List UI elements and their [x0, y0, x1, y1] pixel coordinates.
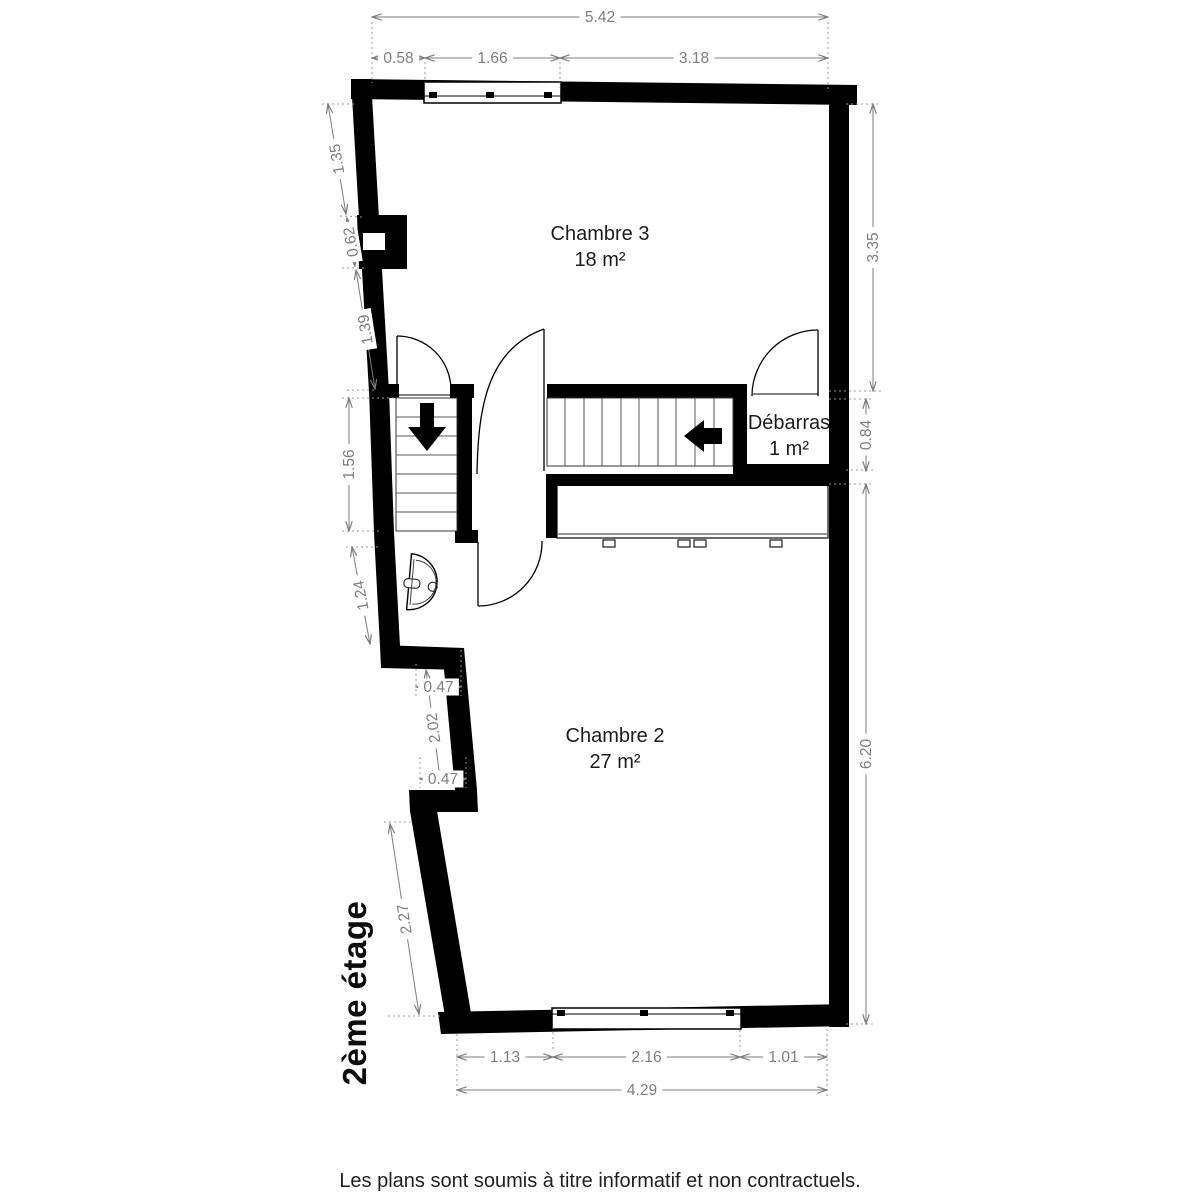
room-label: Débarras1 m²	[748, 412, 830, 460]
balustrade-clip	[678, 540, 690, 547]
stairs-left	[396, 398, 457, 531]
dimension-label: 1.24	[350, 579, 372, 612]
floorplan-canvas: 5.420.581.663.181.132.161.014.291.350.62…	[0, 0, 1200, 1200]
dimension: 3.18	[560, 50, 828, 68]
dimension-label: 4.29	[627, 1082, 657, 1099]
dimension: 0.47	[416, 679, 461, 697]
wall-below-stairs-end	[546, 474, 557, 538]
dimension: 3.35	[865, 104, 883, 391]
wall-debarras-left	[733, 398, 747, 468]
room-area: 1 m²	[769, 438, 809, 460]
dimension-label: 1.01	[768, 1049, 798, 1066]
wall-right	[829, 85, 849, 1027]
dimensions: 5.420.581.663.181.132.161.014.291.350.62…	[325, 9, 882, 1100]
dimension-label: 1.56	[341, 449, 358, 479]
dimension-label: 0.47	[423, 679, 453, 696]
dimension-label: 0.84	[858, 420, 875, 451]
dimension: 1.66	[425, 50, 560, 68]
dimension: 1.13	[457, 1049, 553, 1067]
room-area: 27 m²	[589, 751, 640, 773]
dimension-label: 5.42	[585, 9, 615, 26]
wall-left-mid	[369, 390, 394, 533]
dimension: 0.58	[372, 50, 425, 68]
dimension: 6.20	[858, 484, 876, 1024]
door-chambre3-left	[397, 336, 452, 395]
dimension: 1.24	[349, 547, 374, 644]
dimension-label: 2.27	[394, 903, 415, 935]
door-landing-chambre2	[478, 541, 542, 606]
room-name: Chambre 3	[551, 223, 650, 245]
dimension: 0.84	[858, 399, 876, 471]
dimension-label: 1.35	[327, 143, 349, 176]
balustrade-clip	[603, 540, 615, 547]
dimension-label: 2.02	[424, 712, 445, 744]
dimension: 0.47	[420, 771, 466, 789]
wall-below-stairs	[548, 474, 829, 486]
dimension: 4.29	[457, 1082, 827, 1100]
wall-offset-column	[442, 648, 477, 790]
dimension-label: 3.35	[865, 232, 882, 262]
dimension-label: 3.18	[679, 50, 709, 67]
stairs-central	[547, 398, 733, 466]
floor-title: 2ème étage	[336, 843, 378, 1143]
room-name: Chambre 2	[566, 725, 665, 747]
dimension-label: 1.66	[477, 50, 507, 67]
room-label: Chambre 227 m²	[566, 725, 665, 773]
stairwell-balustrade	[557, 481, 828, 547]
balustrade-clip	[694, 540, 706, 547]
wall-divider-stub	[455, 530, 478, 543]
wall-landing-top	[450, 384, 474, 398]
wall-stair-top	[547, 384, 747, 398]
dimension: 2.16	[553, 1049, 740, 1067]
door-debarras	[752, 330, 818, 396]
dimension-label: 0.47	[428, 771, 458, 788]
wall-left-slanted	[410, 811, 471, 1022]
sink	[402, 553, 440, 612]
door-landing-chambre3	[477, 329, 544, 474]
dimension-label: 6.20	[858, 739, 875, 770]
dimension: 2.27	[390, 824, 419, 1014]
dimension: 1.56	[341, 398, 359, 531]
dimension-label: 2.16	[631, 1049, 661, 1066]
window-top	[424, 82, 561, 103]
dimension: 1.35	[325, 104, 349, 214]
floorplan: 5.420.581.663.181.132.161.014.291.350.62…	[0, 0, 1200, 1200]
room-name: Débarras	[748, 412, 830, 434]
dimension: 1.01	[740, 1049, 827, 1067]
disclaimer-text: Les plans sont soumis à titre informatif…	[0, 1170, 1200, 1193]
chimney-flue	[363, 233, 385, 250]
room-label: Chambre 318 m²	[551, 223, 650, 271]
wall-left-lower	[374, 533, 400, 646]
balustrade-clip	[770, 540, 782, 547]
wall-stair-divider	[457, 396, 472, 533]
room-area: 18 m²	[574, 249, 625, 271]
dimension-label: 1.13	[490, 1049, 520, 1066]
dimension: 5.42	[372, 9, 828, 27]
window-bottom	[552, 1008, 741, 1029]
dimension-label: 0.58	[383, 50, 413, 67]
wall-door-stub	[380, 384, 399, 398]
wall-jog-bottom	[409, 790, 478, 812]
